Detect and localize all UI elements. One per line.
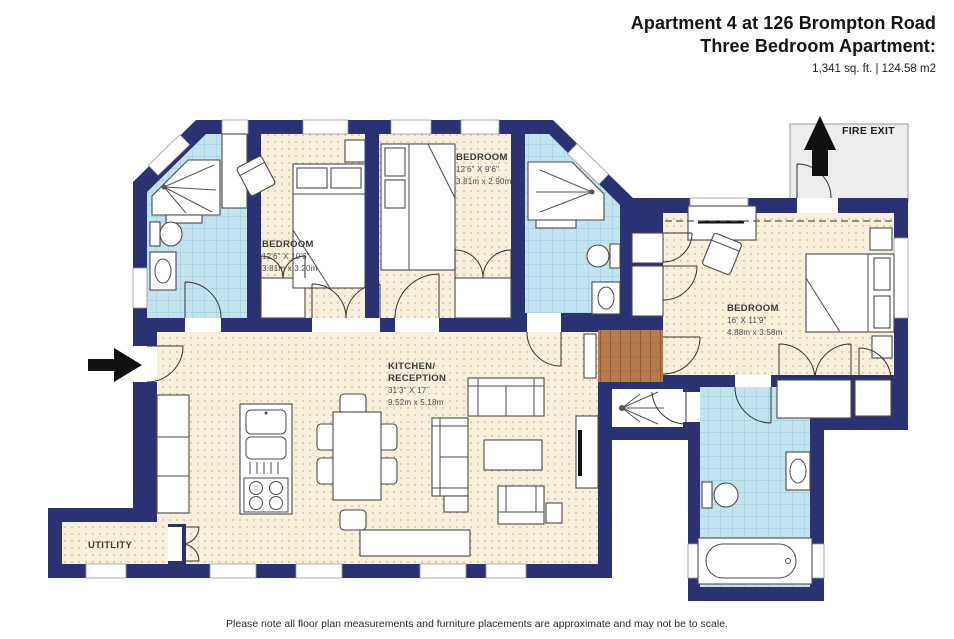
bedroom-right-dims-m: 4.88m x 3.58m xyxy=(727,328,783,337)
side-table-icon xyxy=(444,496,468,512)
fire-exit-label: FIRE EXIT xyxy=(842,125,895,137)
tv-unit-icon xyxy=(576,416,598,488)
sink-icon xyxy=(592,282,620,314)
plan-footnote: Please note all floor plan measurements … xyxy=(0,618,954,630)
sink-icon xyxy=(786,452,810,490)
hallway-wood-floor xyxy=(598,330,663,382)
bed-icon xyxy=(806,254,894,332)
toilet-icon xyxy=(702,482,738,508)
bedroom-left-dims-m: 3.81m x 3.20m xyxy=(262,264,318,273)
hallway-door-leaf xyxy=(584,334,596,378)
bedside-table-icon xyxy=(872,336,892,358)
bedroom-right-closet-2 xyxy=(632,266,663,316)
bedroom-top-dims-m: 3.81m x 2.90m xyxy=(456,177,512,186)
bedroom-right-dims-ft: 16' X 11'9" xyxy=(727,316,767,325)
sofa-icon xyxy=(468,378,544,416)
sideboard-icon xyxy=(360,530,470,556)
bedroom-right-closet-1 xyxy=(632,233,663,263)
kitchen-island-icon xyxy=(240,404,292,514)
toilet-icon xyxy=(587,244,620,268)
floor-plan-page: Apartment 4 at 126 Brompton Road Three B… xyxy=(0,0,954,639)
bed-icon xyxy=(381,144,455,270)
bedside-table-icon xyxy=(870,228,892,250)
sink-icon xyxy=(150,252,176,290)
kitchen-dims-m: 9.52m x 5.18m xyxy=(388,398,444,407)
bedroom-right-wardrobe-1 xyxy=(777,380,851,418)
bedroom-left-label: BEDROOM xyxy=(262,239,314,250)
floor-plan-svg: BEDROOM 12'6" X 10'6" 3.81m x 3.20m BEDR… xyxy=(0,0,954,639)
kitchen-dims-ft: 31'3" X 17' xyxy=(388,386,428,395)
sofa-icon xyxy=(432,418,468,496)
side-table-icon xyxy=(546,503,562,523)
bedroom-top-furniture xyxy=(381,144,455,270)
bedroom-top-closet xyxy=(455,278,511,318)
kitchen-label-2: RECEPTION xyxy=(388,373,446,384)
counter-icon xyxy=(157,395,189,513)
bedroom-right-label: BEDROOM xyxy=(727,303,779,314)
bathtub-icon xyxy=(698,538,812,584)
bedroom-top-dims-ft: 12'6" X 9'6" xyxy=(456,165,499,174)
utility-label: UTITLITY xyxy=(88,540,132,551)
bedroom-left-dims-ft: 12'6" X 10'6" xyxy=(262,252,310,261)
armchair-icon xyxy=(498,486,544,524)
bedside-table-icon xyxy=(345,140,365,162)
coffee-table-icon xyxy=(484,440,542,470)
kitchen-label-1: KITCHEN/ xyxy=(388,361,435,372)
bedroom-top-label: BEDROOM xyxy=(456,152,508,163)
bedroom-right-wardrobe-2 xyxy=(855,380,891,416)
toilet-icon xyxy=(150,222,182,246)
